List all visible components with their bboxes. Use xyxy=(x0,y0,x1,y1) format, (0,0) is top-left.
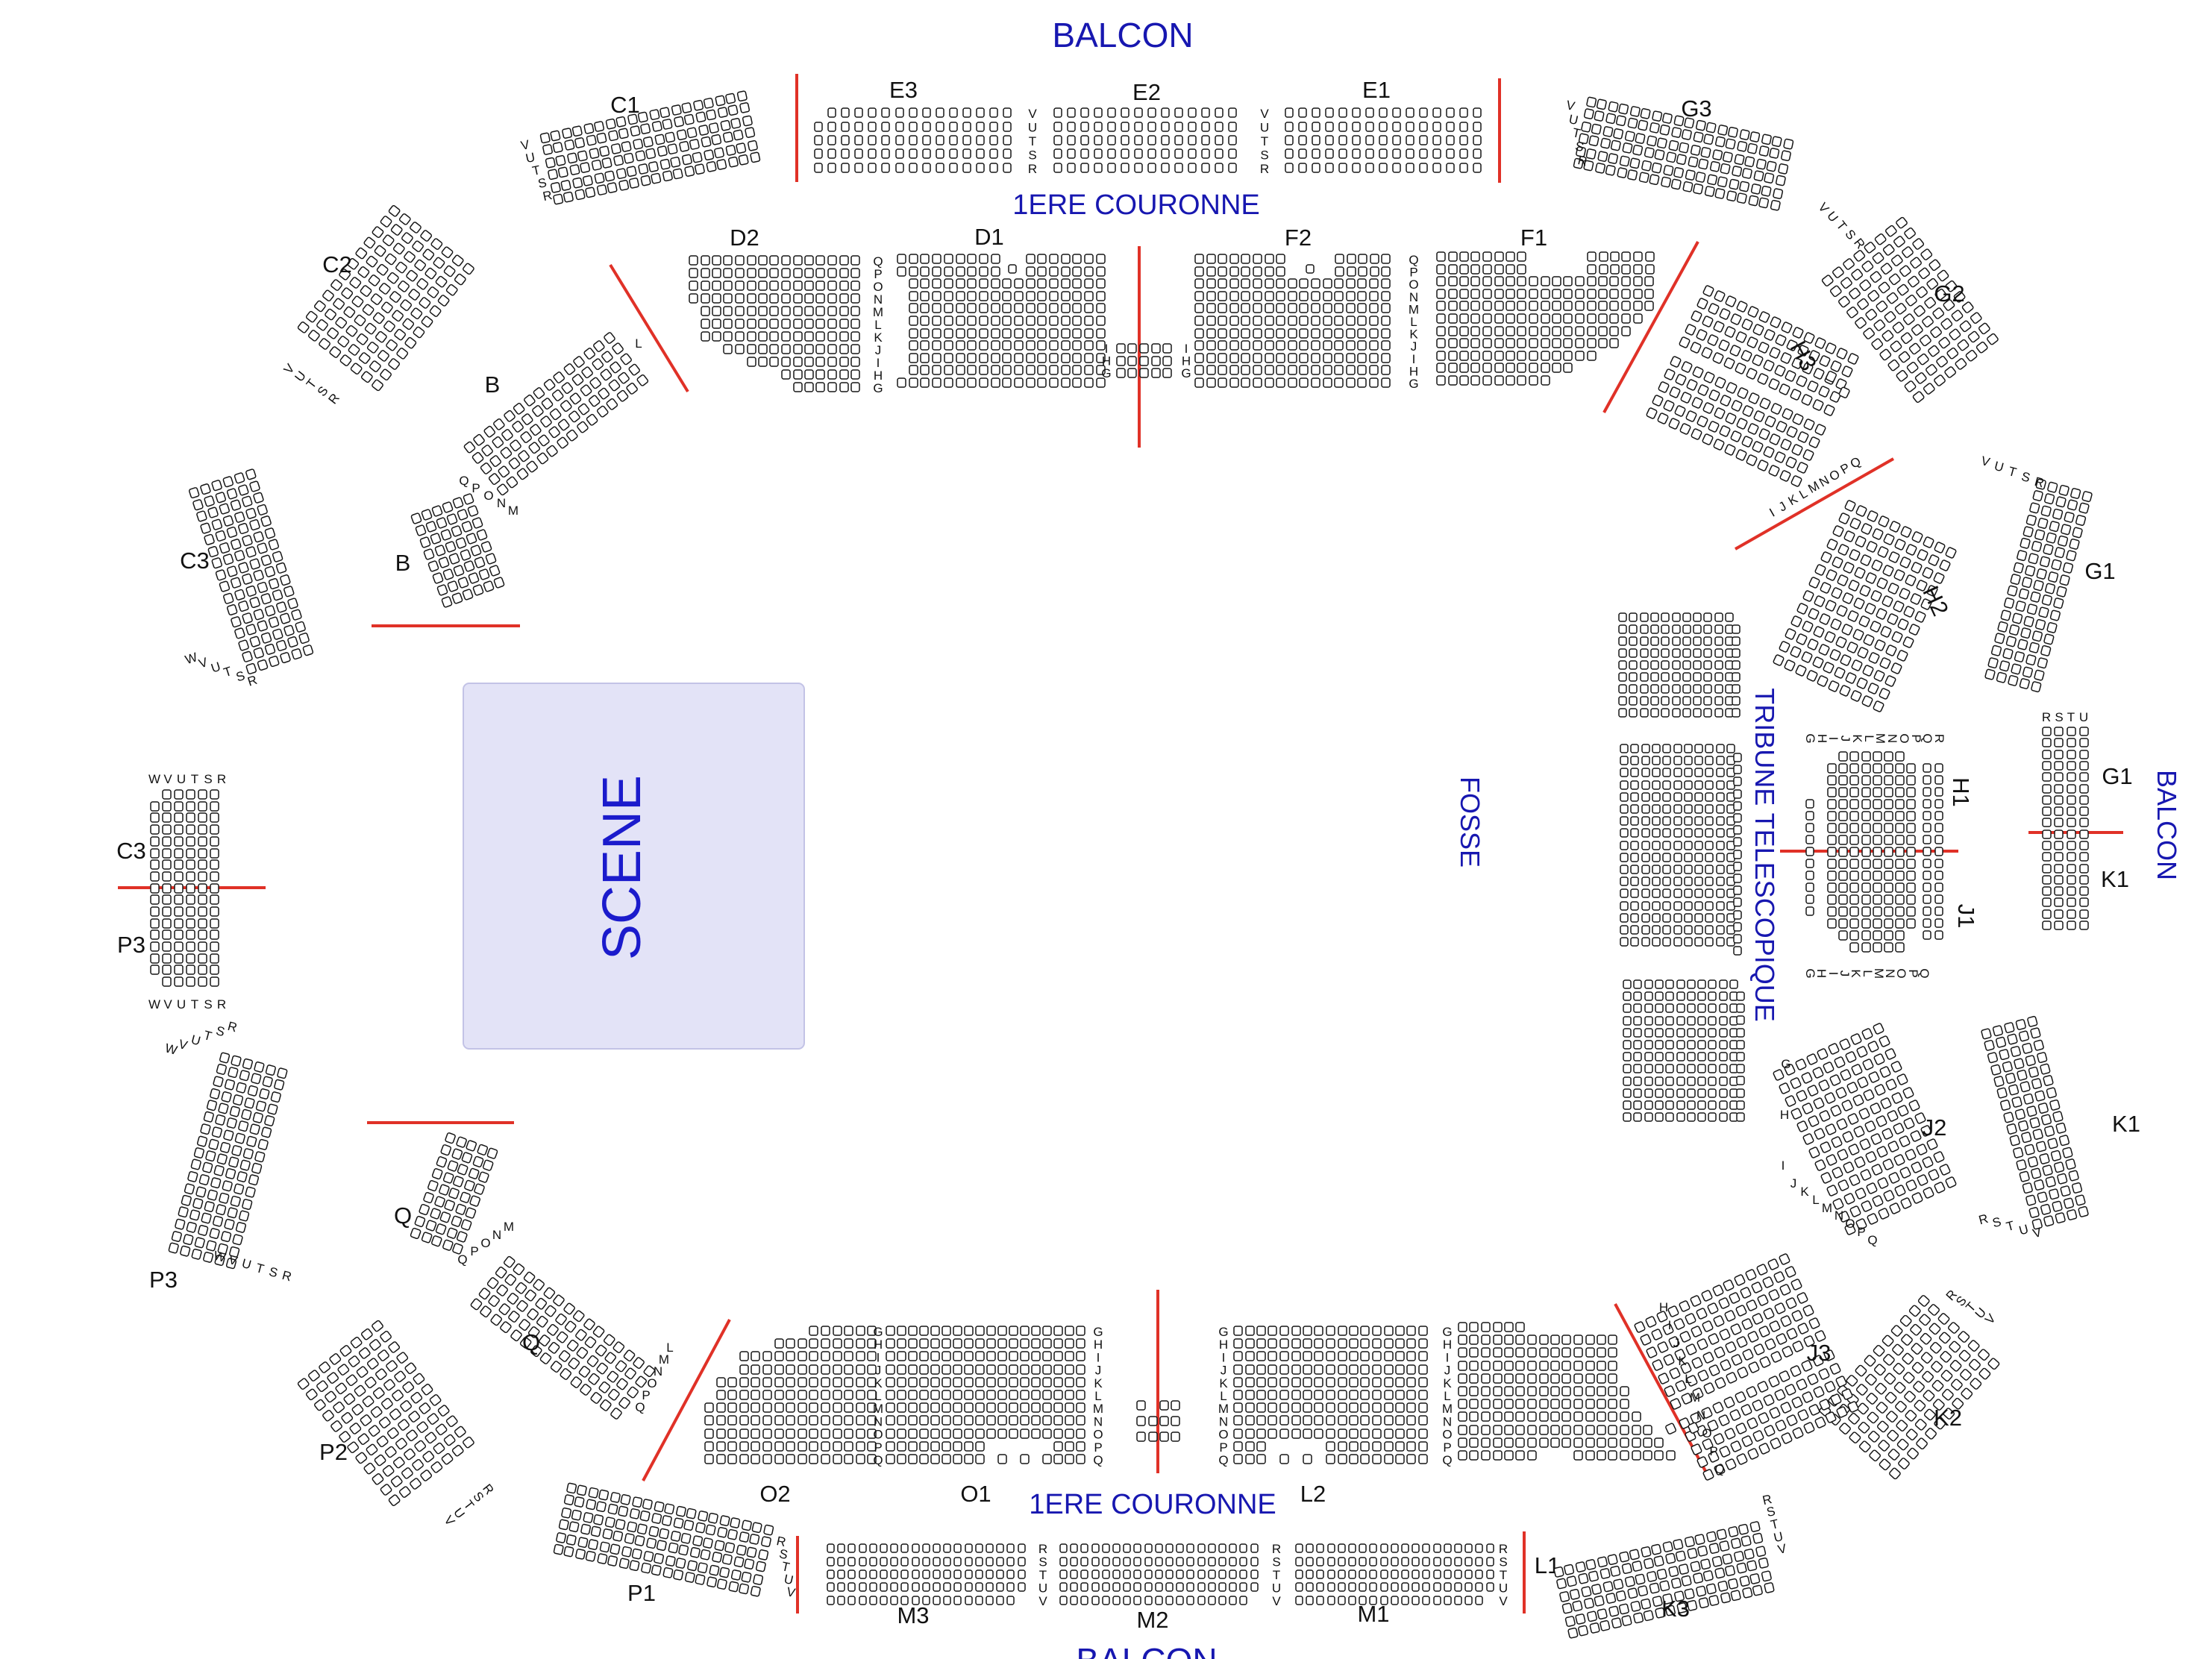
svg-text:BALCON: BALCON xyxy=(1052,16,1193,54)
svg-text:I: I xyxy=(1767,506,1777,520)
svg-text:V: V xyxy=(1776,1541,1788,1557)
svg-text:I: I xyxy=(877,1350,880,1364)
svg-text:H: H xyxy=(1443,1337,1452,1352)
svg-text:E1: E1 xyxy=(1362,77,1391,103)
svg-text:G2: G2 xyxy=(1934,280,1964,307)
svg-text:T: T xyxy=(191,772,198,786)
svg-text:T: T xyxy=(2067,710,2075,724)
svg-text:G: G xyxy=(1101,366,1111,380)
svg-text:B: B xyxy=(485,371,501,398)
svg-text:V: V xyxy=(177,1037,189,1053)
svg-text:N: N xyxy=(497,496,506,510)
svg-text:U: U xyxy=(2079,710,2088,724)
svg-text:R: R xyxy=(1038,1542,1047,1556)
svg-text:P: P xyxy=(1094,1440,1102,1455)
svg-text:J: J xyxy=(1095,1364,1102,1378)
svg-text:J: J xyxy=(1444,1364,1451,1378)
svg-text:U: U xyxy=(2017,1222,2030,1238)
svg-text:T: T xyxy=(191,997,198,1012)
svg-text:M: M xyxy=(1218,1402,1229,1416)
svg-text:TRIBUNE TELESCOPIQUE: TRIBUNE TELESCOPIQUE xyxy=(1749,688,1780,1021)
svg-text:G: G xyxy=(1218,1325,1228,1339)
svg-text:R: R xyxy=(1272,1542,1281,1556)
svg-text:C3: C3 xyxy=(116,838,146,864)
svg-text:S: S xyxy=(214,1023,226,1039)
svg-text:J2: J2 xyxy=(1923,1114,1947,1141)
svg-text:T: T xyxy=(202,1028,213,1044)
svg-text:R: R xyxy=(1260,162,1269,176)
svg-text:E2: E2 xyxy=(1132,79,1161,105)
svg-text:T: T xyxy=(254,1261,266,1276)
svg-text:V: V xyxy=(227,1252,239,1268)
svg-text:M: M xyxy=(1690,1390,1700,1405)
svg-text:K: K xyxy=(1443,1376,1452,1390)
svg-text:O: O xyxy=(1093,1428,1103,1442)
svg-text:K1: K1 xyxy=(2112,1111,2140,1137)
svg-text:O2: O2 xyxy=(759,1481,790,1507)
svg-text:H: H xyxy=(1094,1337,1103,1352)
svg-text:L: L xyxy=(874,1389,881,1403)
svg-text:R: R xyxy=(246,673,260,689)
svg-text:U: U xyxy=(177,997,186,1012)
svg-text:O: O xyxy=(483,489,493,503)
svg-text:K: K xyxy=(1786,492,1801,508)
svg-text:Q: Q xyxy=(394,1202,412,1229)
svg-text:U: U xyxy=(240,1256,253,1273)
svg-text:M3: M3 xyxy=(897,1602,929,1628)
svg-text:O: O xyxy=(1442,1428,1452,1442)
svg-text:V: V xyxy=(1565,98,1577,113)
svg-text:P1: P1 xyxy=(627,1580,656,1606)
svg-text:I: I xyxy=(1222,1350,1226,1364)
svg-text:Q: Q xyxy=(1093,1453,1103,1467)
svg-text:V: V xyxy=(163,772,172,786)
svg-text:O: O xyxy=(1702,1426,1711,1440)
svg-text:K2: K2 xyxy=(1934,1405,1962,1431)
svg-text:T: T xyxy=(1029,134,1036,148)
svg-text:S: S xyxy=(204,772,212,786)
svg-text:U: U xyxy=(1038,1581,1047,1596)
svg-text:L: L xyxy=(1220,1389,1226,1403)
svg-text:R: R xyxy=(2042,710,2051,724)
svg-text:T: T xyxy=(2007,464,2018,480)
svg-text:K: K xyxy=(1678,1354,1687,1368)
svg-text:C3: C3 xyxy=(180,548,210,574)
svg-text:S: S xyxy=(1028,148,1036,163)
svg-text:K: K xyxy=(874,1376,883,1390)
svg-text:BALCON: BALCON xyxy=(2152,770,2182,880)
svg-text:R: R xyxy=(1028,162,1037,176)
svg-text:K3: K3 xyxy=(1661,1596,1690,1622)
svg-text:S: S xyxy=(204,997,212,1012)
svg-text:V: V xyxy=(786,1584,798,1600)
svg-text:P3: P3 xyxy=(117,932,145,958)
svg-text:Q: Q xyxy=(522,1329,540,1355)
svg-text:Q: Q xyxy=(1714,1462,1724,1476)
svg-text:M: M xyxy=(1442,1402,1453,1416)
svg-text:K: K xyxy=(1094,1376,1103,1390)
svg-text:I: I xyxy=(1097,1350,1100,1364)
svg-text:P: P xyxy=(471,481,480,495)
svg-text:1ERE COURONNE: 1ERE COURONNE xyxy=(1012,189,1260,221)
svg-text:T: T xyxy=(2005,1218,2016,1234)
svg-text:W: W xyxy=(212,1248,227,1265)
svg-text:I: I xyxy=(1668,1318,1672,1332)
svg-text:U: U xyxy=(1272,1581,1281,1596)
svg-text:V: V xyxy=(1272,1594,1281,1608)
svg-text:S: S xyxy=(1260,148,1268,163)
svg-text:U: U xyxy=(177,772,186,786)
svg-text:N: N xyxy=(1696,1408,1705,1423)
svg-text:O: O xyxy=(480,1236,490,1250)
svg-text:G: G xyxy=(1781,1057,1790,1071)
svg-text:M2: M2 xyxy=(1136,1607,1168,1633)
svg-text:U: U xyxy=(1499,1581,1508,1596)
svg-text:L2: L2 xyxy=(1300,1481,1326,1507)
svg-text:T: T xyxy=(1261,134,1268,148)
svg-text:T: T xyxy=(1500,1568,1507,1582)
svg-text:V: V xyxy=(1499,1594,1508,1608)
svg-text:S: S xyxy=(2055,710,2063,724)
svg-text:M: M xyxy=(508,504,518,518)
svg-text:R: R xyxy=(1499,1542,1508,1556)
svg-text:P3: P3 xyxy=(149,1267,178,1293)
svg-text:J: J xyxy=(1221,1364,1227,1378)
svg-text:I: I xyxy=(1446,1350,1450,1364)
svg-text:J: J xyxy=(1790,1176,1797,1191)
svg-text:U: U xyxy=(1028,121,1037,135)
svg-text:V: V xyxy=(1260,107,1269,121)
svg-text:U: U xyxy=(1993,459,2005,475)
svg-text:Q: Q xyxy=(457,1252,467,1267)
svg-text:Q: Q xyxy=(635,1400,645,1414)
svg-text:V: V xyxy=(197,655,210,671)
svg-text:C1: C1 xyxy=(610,92,640,118)
svg-text:U: U xyxy=(189,1032,202,1049)
svg-text:Q: Q xyxy=(1848,454,1864,471)
svg-text:P2: P2 xyxy=(319,1439,348,1465)
svg-text:L: L xyxy=(1094,1389,1101,1403)
svg-text:M1: M1 xyxy=(1357,1601,1389,1627)
svg-text:N: N xyxy=(492,1228,501,1242)
svg-text:S: S xyxy=(1272,1555,1280,1569)
svg-text:G: G xyxy=(1409,377,1418,391)
svg-text:T: T xyxy=(1273,1568,1280,1582)
svg-text:N: N xyxy=(1219,1414,1228,1429)
svg-text:I: I xyxy=(1782,1158,1785,1173)
svg-text:J3: J3 xyxy=(1807,1340,1832,1366)
svg-text:H: H xyxy=(1780,1108,1789,1122)
svg-text:F1: F1 xyxy=(1520,225,1547,251)
svg-text:N: N xyxy=(1443,1414,1452,1429)
svg-text:BALCON: BALCON xyxy=(1076,1641,1217,1659)
svg-text:H: H xyxy=(874,1337,883,1352)
svg-text:W: W xyxy=(148,997,160,1012)
svg-text:G: G xyxy=(1442,1325,1452,1339)
svg-text:1ERE COURONNE: 1ERE COURONNE xyxy=(1029,1489,1276,1520)
svg-text:T: T xyxy=(222,664,234,680)
svg-text:D1: D1 xyxy=(974,224,1004,250)
svg-text:G: G xyxy=(873,1325,883,1339)
svg-text:G: G xyxy=(873,381,883,395)
svg-text:V: V xyxy=(1038,1594,1047,1608)
svg-text:D2: D2 xyxy=(730,225,759,251)
svg-text:F2: F2 xyxy=(1285,225,1312,251)
svg-text:O1: O1 xyxy=(960,1481,991,1507)
svg-text:P: P xyxy=(874,1440,882,1455)
svg-text:J: J xyxy=(1673,1336,1680,1350)
svg-text:J1: J1 xyxy=(1953,904,1979,929)
svg-text:Q: Q xyxy=(1442,1453,1452,1467)
svg-text:M: M xyxy=(1093,1402,1103,1416)
svg-text:T: T xyxy=(1039,1568,1047,1582)
svg-text:V: V xyxy=(1979,454,1992,469)
svg-text:B: B xyxy=(395,550,411,576)
svg-text:L: L xyxy=(635,336,642,351)
svg-text:P: P xyxy=(1709,1444,1717,1458)
svg-text:M: M xyxy=(504,1220,514,1234)
svg-text:FOSSE: FOSSE xyxy=(1455,777,1485,868)
svg-text:G1: G1 xyxy=(2084,558,2115,584)
svg-text:V: V xyxy=(1028,107,1037,121)
svg-text:H1: H1 xyxy=(1948,777,1974,807)
svg-text:N: N xyxy=(874,1414,883,1429)
svg-text:J: J xyxy=(875,1364,882,1378)
svg-text:R: R xyxy=(1977,1211,1990,1228)
svg-text:K: K xyxy=(1219,1376,1228,1390)
svg-text:C2: C2 xyxy=(322,251,352,277)
svg-text:K: K xyxy=(1800,1185,1809,1199)
svg-text:G: G xyxy=(1093,1325,1103,1339)
svg-text:J: J xyxy=(1776,499,1789,515)
svg-text:Q: Q xyxy=(1218,1453,1228,1467)
svg-text:SCENE: SCENE xyxy=(592,775,652,960)
svg-text:W: W xyxy=(163,1041,178,1058)
svg-text:R: R xyxy=(226,1019,239,1035)
svg-text:R: R xyxy=(281,1268,293,1285)
svg-text:N: N xyxy=(1094,1414,1103,1429)
svg-text:Q: Q xyxy=(873,1453,883,1467)
svg-text:P: P xyxy=(1443,1440,1451,1455)
svg-text:M: M xyxy=(873,1402,883,1416)
svg-text:R: R xyxy=(217,772,226,786)
svg-text:U: U xyxy=(1260,121,1269,135)
svg-text:E3: E3 xyxy=(889,77,918,103)
svg-text:O: O xyxy=(1218,1428,1228,1442)
svg-text:S: S xyxy=(234,668,247,685)
svg-text:L: L xyxy=(1444,1389,1450,1403)
svg-text:G: G xyxy=(1181,366,1191,380)
svg-text:S: S xyxy=(1499,1555,1507,1569)
svg-text:Q: Q xyxy=(1917,968,1931,978)
svg-text:S: S xyxy=(2020,469,2031,485)
svg-text:U: U xyxy=(210,659,223,676)
svg-text:H: H xyxy=(1219,1337,1228,1352)
svg-text:W: W xyxy=(148,772,160,786)
svg-text:L: L xyxy=(1685,1372,1691,1386)
svg-text:T: T xyxy=(1834,219,1849,233)
svg-text:V: V xyxy=(163,997,172,1012)
svg-text:O: O xyxy=(873,1428,883,1442)
svg-text:P: P xyxy=(1219,1440,1227,1455)
svg-text:G1: G1 xyxy=(2102,763,2132,789)
svg-text:S: S xyxy=(1038,1555,1047,1569)
svg-text:R: R xyxy=(217,997,226,1012)
svg-text:G3: G3 xyxy=(1681,95,1711,122)
svg-text:R: R xyxy=(1932,734,1946,743)
svg-text:K1: K1 xyxy=(2101,866,2129,892)
svg-text:S: S xyxy=(1991,1214,2003,1230)
svg-text:P: P xyxy=(470,1244,478,1258)
svg-text:H: H xyxy=(1659,1300,1668,1314)
svg-text:S: S xyxy=(267,1264,279,1280)
svg-text:Q: Q xyxy=(459,474,469,488)
